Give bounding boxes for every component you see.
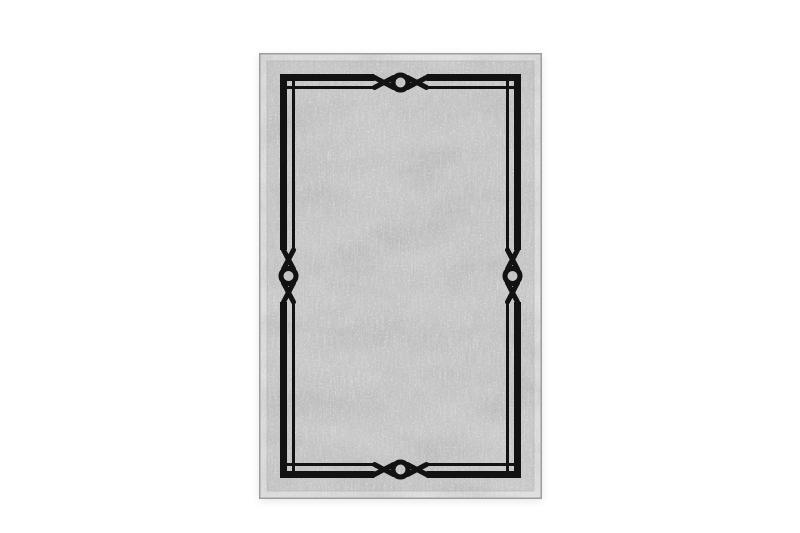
rug	[259, 53, 542, 499]
photo-background	[0, 0, 800, 533]
rug-image	[259, 53, 542, 499]
rug-texture-speckles	[259, 53, 542, 499]
